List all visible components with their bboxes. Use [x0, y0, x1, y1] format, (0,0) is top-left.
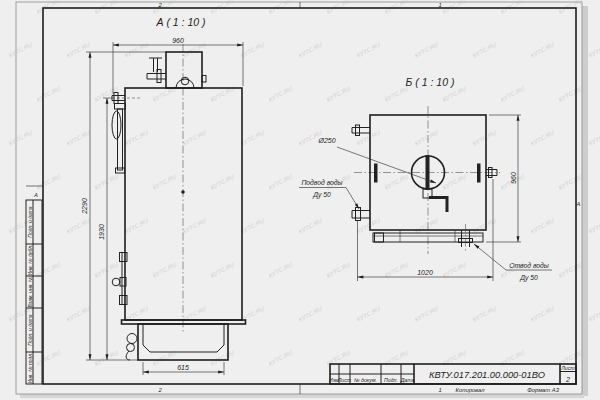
- tb-designation: КВТУ.017.201.00.000-01ВО: [429, 370, 545, 380]
- water-inlet-label: Подвод воды: [301, 179, 342, 186]
- water-outlet-label: Отвод воды: [509, 262, 549, 269]
- margin-label-podp-data-2: Подп. и дата: [27, 314, 33, 346]
- water-outlet-dn: Ду 50: [519, 274, 538, 282]
- zone-row-left: А: [33, 192, 38, 198]
- drawing-canvas: КУТС.RUКУТС.RUКУТС.RUКУТС.RUКУТС.RUКУТС.…: [0, 0, 600, 400]
- tb-col-podp: Подп.: [384, 377, 398, 383]
- tb-footer-format: Формат А3: [527, 387, 559, 393]
- view-front-title: А ( 1 : 10 ): [155, 16, 205, 28]
- dim-960-front: 960: [172, 37, 184, 44]
- sheet-shadow-right: [582, 6, 588, 396]
- zone-bottom-right: 1: [438, 387, 441, 393]
- zone-top-right: 1: [438, 2, 441, 8]
- tb-col-list: Лист: [337, 377, 352, 383]
- tb-footer-copy: Копировал: [456, 387, 486, 393]
- tb-sheet-label: Лист: [560, 365, 575, 371]
- view-side-title: Б ( 1 : 10 ): [406, 76, 455, 88]
- cleat-left: [374, 164, 378, 183]
- cleat-right: [477, 164, 481, 183]
- margin-label-vzam-inv: Взам. инв. №: [27, 276, 33, 308]
- margin-label-inv-dubl: Инв. № дубл.: [27, 245, 33, 276]
- water-inlet-dn: Ду 50: [312, 191, 331, 199]
- zone-row-right: А: [576, 201, 581, 207]
- margin-label-inv-podl: Инв. № подл.: [27, 352, 33, 383]
- tb-sheet-number: 2: [565, 376, 570, 383]
- margin-label-podp-data-1: Подп. и дата: [27, 206, 33, 238]
- dim-d250: Ø250: [317, 137, 335, 144]
- centerline-point: [181, 190, 185, 194]
- dim-960-side: 960: [510, 172, 517, 184]
- dim-1930: 1930: [98, 224, 105, 240]
- dim-2290: 2290: [81, 198, 88, 215]
- tb-col-data: Дата: [400, 377, 415, 383]
- tb-col-ndoc: № докум.: [354, 377, 377, 383]
- sheet-shadow-bottom: [20, 394, 584, 398]
- dim-615: 615: [177, 364, 189, 371]
- dim-1020: 1020: [417, 269, 433, 276]
